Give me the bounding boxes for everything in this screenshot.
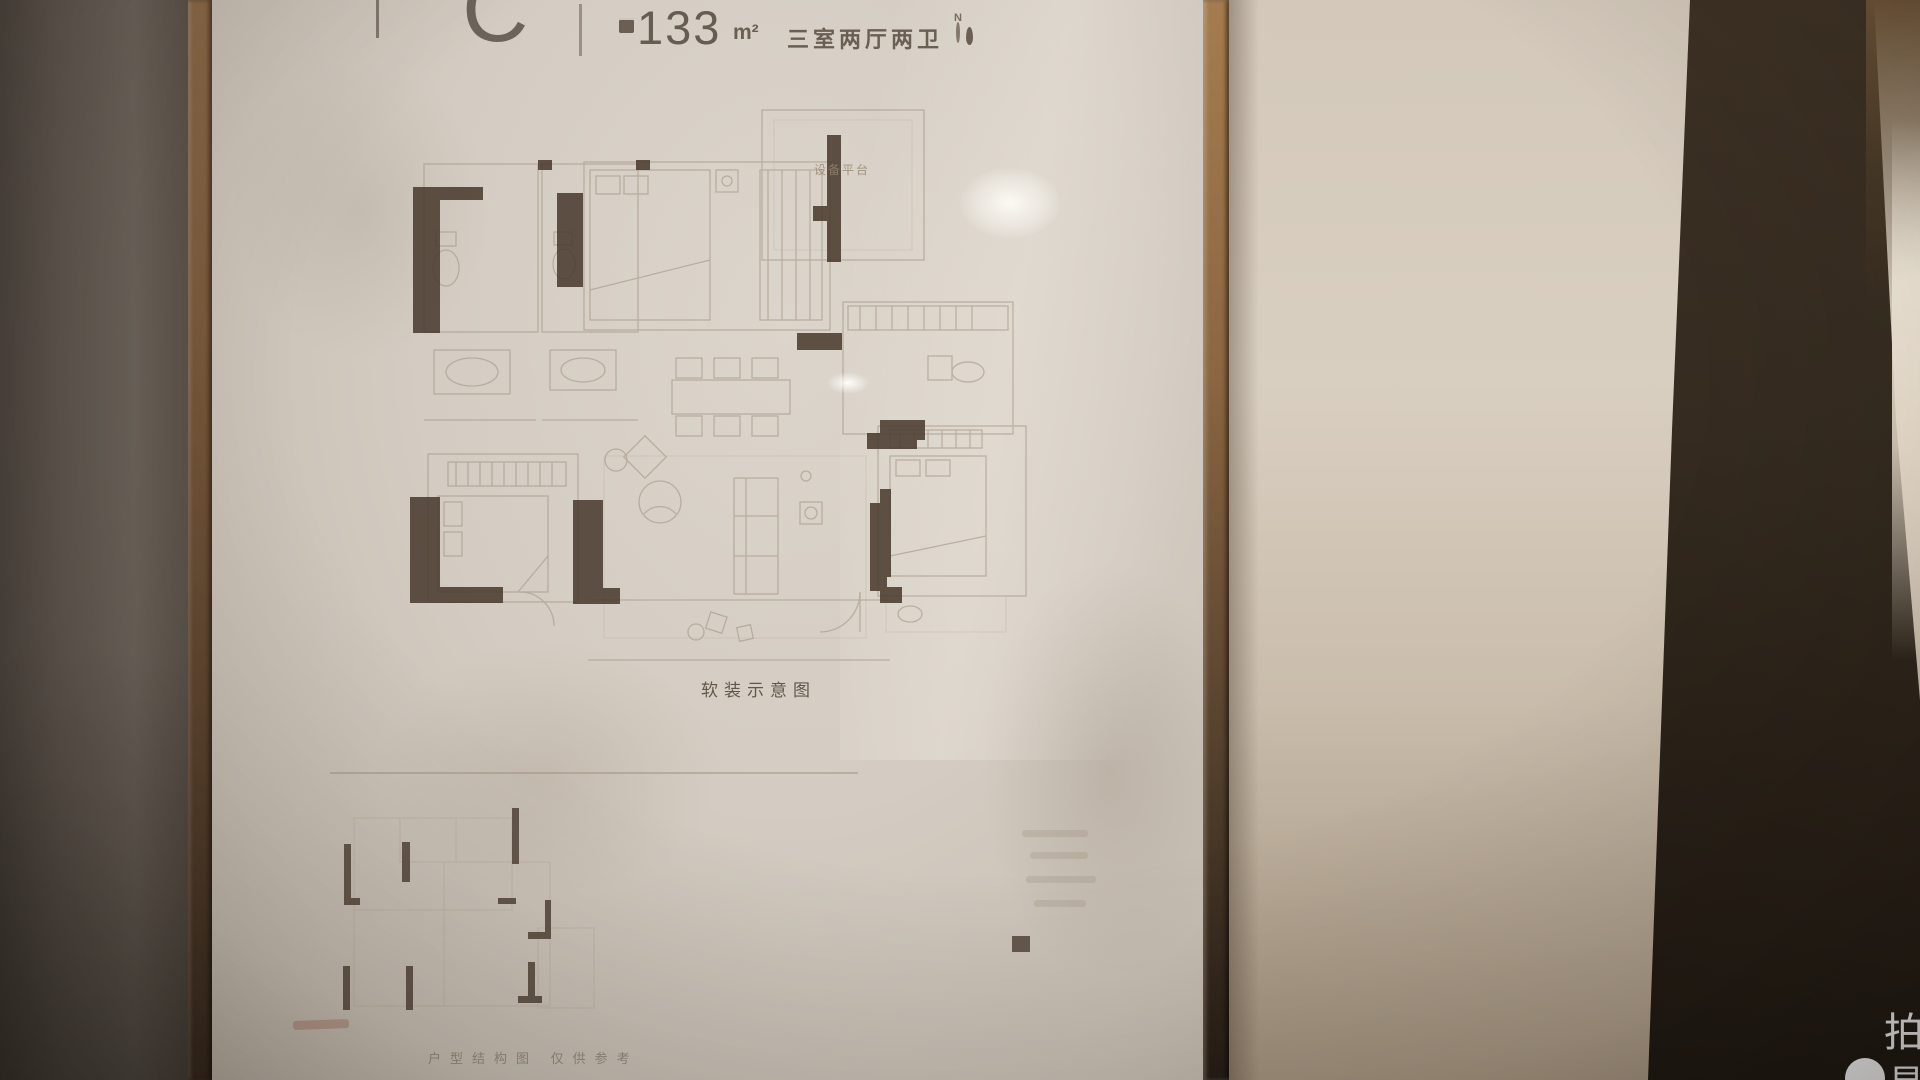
secondary-walls <box>343 808 551 1010</box>
illegible-note-line <box>1030 852 1088 859</box>
secondary-outlines <box>354 818 594 1008</box>
compass-north-icon: N <box>941 12 975 42</box>
specular-highlight <box>960 168 1060 238</box>
picture-frame-right-bar <box>1203 0 1229 1080</box>
secondary-floor-plan <box>340 798 610 1053</box>
unit-type-letter: C <box>462 0 528 63</box>
wall-light-sliver <box>1892 120 1920 660</box>
compass-circle <box>956 22 960 43</box>
section-divider-line <box>330 772 858 774</box>
area-value: 133 <box>637 0 721 55</box>
header-rule-left <box>376 0 379 38</box>
layout-description: 三室两厅两卫 <box>787 22 943 54</box>
illegible-note-line <box>1034 900 1086 907</box>
compass-needle <box>966 27 973 45</box>
legend-square-marker <box>1012 936 1030 952</box>
specular-highlight <box>826 372 870 394</box>
main-floor-plan: 设备平台 <box>408 104 1033 674</box>
wall-left-shadowed <box>0 0 192 1080</box>
illegible-note-line <box>1022 830 1088 837</box>
secondary-plan-caption: 户型结构图 仅供参考 <box>428 1048 639 1067</box>
picture-frame-left-bar <box>188 0 212 1080</box>
watermark-character-top: 拍 <box>1884 1000 1920 1058</box>
platform-room-label: 设备平台 <box>814 162 870 177</box>
illegible-note-line <box>1026 876 1096 883</box>
header-divider-rule <box>579 4 582 56</box>
structural-walls <box>410 135 925 604</box>
watermark-character-bottom: 易 <box>1888 1054 1920 1080</box>
room-outlines <box>424 110 1026 660</box>
main-plan-caption: 软装示意图 <box>701 676 816 701</box>
photo-root: C 133 m² 三室两厅两卫 N <box>0 0 1920 1080</box>
area-unit: m² <box>733 21 759 45</box>
area-icon <box>619 18 634 33</box>
